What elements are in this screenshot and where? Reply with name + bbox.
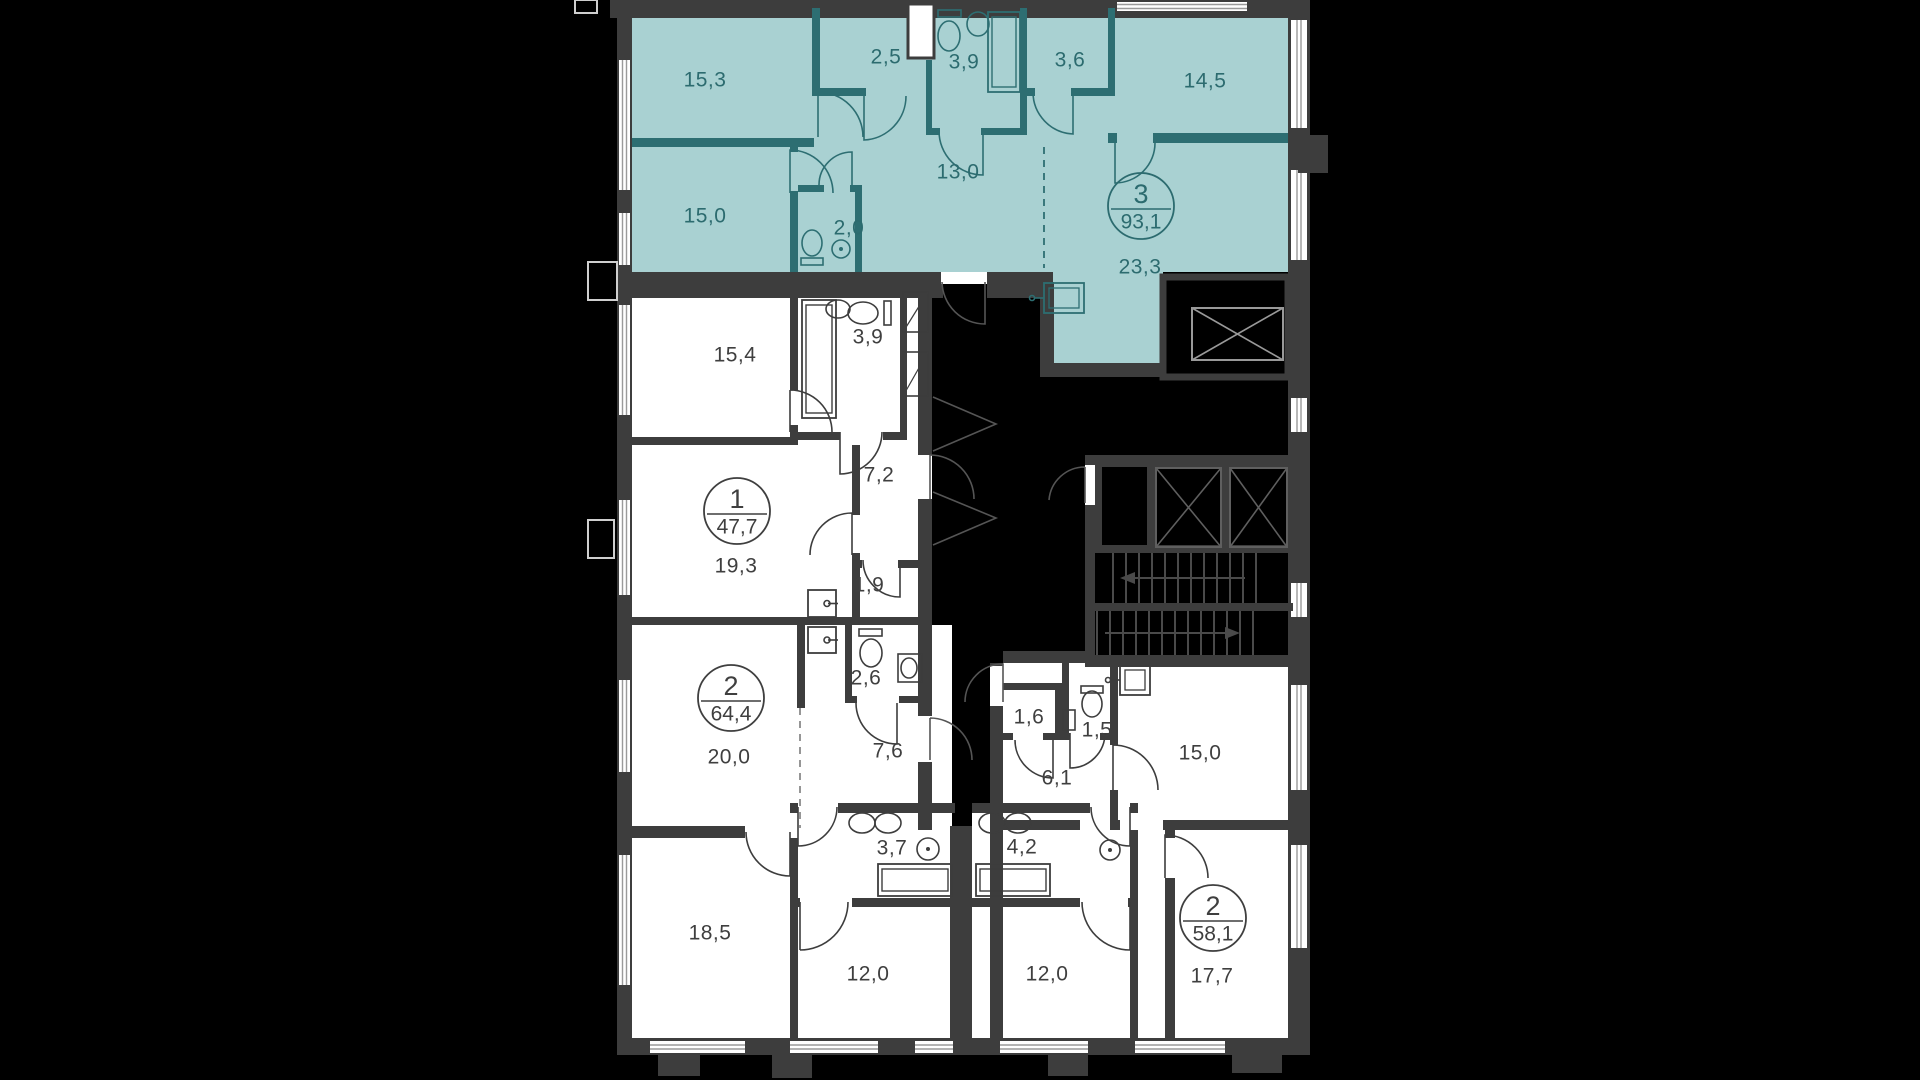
room-area-label: 15,0 xyxy=(1179,742,1222,765)
wall-segment xyxy=(1221,462,1230,553)
wall-segment xyxy=(972,898,1080,907)
wall-bump xyxy=(1048,1055,1088,1076)
stair-landing-wall xyxy=(1085,603,1293,611)
badge-room-count: 3 xyxy=(1133,179,1148,209)
wall-segment xyxy=(790,425,798,445)
wall-segment xyxy=(790,191,798,272)
room-area-label: 7,6 xyxy=(873,740,904,763)
wall-segment xyxy=(617,617,932,625)
room-area-label: 6,1 xyxy=(1042,767,1073,790)
wall-segment xyxy=(790,298,798,390)
wall-segment xyxy=(972,803,1090,813)
wall-segment xyxy=(1108,133,1117,143)
vent-shaft xyxy=(908,4,934,58)
wall-segment xyxy=(845,696,857,703)
room-area-label: 3,6 xyxy=(1055,49,1086,72)
window xyxy=(619,60,630,190)
room-area-label: 13,0 xyxy=(937,161,980,184)
window xyxy=(1291,583,1307,617)
room-area-label: 4,2 xyxy=(1007,836,1038,859)
wall-bump xyxy=(658,1055,700,1076)
door-threshold xyxy=(990,666,1003,706)
wall-segment xyxy=(1071,88,1113,96)
badge-room-count: 2 xyxy=(1205,891,1220,921)
window xyxy=(619,680,630,772)
sink-drain xyxy=(839,247,843,251)
window xyxy=(1000,1041,1088,1053)
wall-segment xyxy=(1095,462,1102,547)
badge-room-count: 1 xyxy=(729,484,744,514)
window xyxy=(619,213,630,265)
window xyxy=(619,500,630,595)
wall-segment xyxy=(918,499,932,716)
room-area-label: 3,9 xyxy=(853,326,884,349)
wall-segment xyxy=(1003,820,1080,830)
wall-segment xyxy=(1163,820,1288,830)
wall-segment xyxy=(1040,282,1054,363)
balcony-box xyxy=(588,520,614,558)
badge-room-count: 2 xyxy=(723,671,738,701)
room-area-label: 12,0 xyxy=(847,963,890,986)
balcony-box xyxy=(575,0,597,13)
room-area-label: 18,5 xyxy=(689,922,732,945)
window xyxy=(619,305,630,415)
window xyxy=(1135,1041,1225,1053)
wall-segment xyxy=(1147,462,1156,553)
wall-segment xyxy=(1055,683,1062,740)
door-threshold xyxy=(941,272,987,284)
badge-apartment-area: 93,1 xyxy=(1121,211,1162,234)
room-area-label: 1,5 xyxy=(1082,719,1113,742)
room-area-label: 17,7 xyxy=(1191,965,1234,988)
wall-segment xyxy=(1085,455,1293,467)
room-area-label: 3,9 xyxy=(949,51,980,74)
wall-bump xyxy=(772,1055,812,1078)
wall-segment xyxy=(1108,8,1115,96)
room-area-label: 7,2 xyxy=(864,464,895,487)
window xyxy=(1291,845,1307,948)
wall-segment xyxy=(1153,133,1288,143)
room-area-label: 2,6 xyxy=(851,667,882,690)
badge-apartment-area: 64,4 xyxy=(711,703,752,726)
room-area-label: 20,0 xyxy=(708,746,751,769)
room-area-label: 14,5 xyxy=(1184,70,1227,93)
wall-segment xyxy=(1062,733,1070,740)
room-area-label: 2,0 xyxy=(834,217,865,240)
floor-plan-canvas: 15,32,53,93,614,513,015,02,023,3393,115,… xyxy=(0,0,1920,1080)
wall-segment xyxy=(1165,878,1175,1038)
wall-segment xyxy=(632,138,814,147)
wall-segment xyxy=(1085,503,1095,667)
window xyxy=(1117,2,1247,11)
room-area-label: 23,3 xyxy=(1119,256,1162,279)
wall-segment xyxy=(1040,363,1165,377)
window xyxy=(1291,20,1307,128)
room-area-label: 15,3 xyxy=(684,69,727,92)
wall-segment xyxy=(798,185,824,192)
wall-segment xyxy=(1043,733,1062,740)
wall-segment xyxy=(926,128,940,135)
wall-segment xyxy=(1130,830,1138,1038)
door-threshold xyxy=(1085,465,1095,505)
wall-segment xyxy=(1003,733,1013,740)
wall-segment xyxy=(990,704,1003,1038)
wall-segment xyxy=(617,272,943,298)
sink-drain xyxy=(1108,848,1112,852)
wall-segment xyxy=(852,560,862,568)
room-area-label: 3,7 xyxy=(877,837,908,860)
wall-segment xyxy=(950,826,972,1055)
wall-segment xyxy=(845,625,852,703)
room-area-label: 1,6 xyxy=(1014,706,1045,729)
wall-segment xyxy=(798,432,840,440)
badge-apartment-area: 58,1 xyxy=(1193,923,1234,946)
wall-segment xyxy=(1020,8,1027,132)
wall-segment xyxy=(898,560,927,568)
wall-segment xyxy=(797,625,805,708)
room-area-label: 2,5 xyxy=(871,46,902,69)
wall-segment xyxy=(790,898,800,907)
wall-segment xyxy=(1110,790,1118,820)
room-area-label: 12,0 xyxy=(1026,963,1069,986)
wall-segment xyxy=(918,282,932,455)
wall-segment xyxy=(1003,683,1062,690)
wall-segment xyxy=(899,696,927,703)
wall-segment xyxy=(632,437,790,445)
window xyxy=(1291,398,1307,432)
wall-segment xyxy=(838,803,955,813)
wall-segment xyxy=(926,60,932,131)
window xyxy=(1291,685,1307,790)
wall-segment xyxy=(918,760,932,830)
room-area-label: 19,3 xyxy=(715,555,758,578)
window xyxy=(619,855,630,985)
window xyxy=(915,1041,953,1053)
room-area-label: 15,0 xyxy=(684,205,727,228)
sink-drain xyxy=(926,847,930,851)
room-area-label: 15,4 xyxy=(714,344,757,367)
balcony-box xyxy=(588,262,617,300)
wall-segment xyxy=(852,445,860,515)
wall-segment xyxy=(617,826,745,838)
wall-segment xyxy=(790,838,798,1038)
room-area-label: 1,9 xyxy=(854,574,885,597)
floor-plan: 15,32,53,93,614,513,015,02,023,3393,115,… xyxy=(0,0,1920,1080)
wall-segment xyxy=(1165,830,1175,838)
wall-bump xyxy=(1298,135,1328,173)
window xyxy=(1291,170,1307,260)
wall-segment xyxy=(852,898,955,907)
wall-bump xyxy=(1232,1055,1282,1073)
wall-segment xyxy=(1110,820,1120,830)
wall-segment xyxy=(812,8,820,96)
badge-apartment-area: 47,7 xyxy=(717,516,758,539)
window xyxy=(790,1041,878,1053)
window xyxy=(650,1041,745,1053)
wall-segment xyxy=(790,803,798,813)
wall-segment xyxy=(1003,651,1088,663)
wall-segment xyxy=(1130,803,1138,813)
